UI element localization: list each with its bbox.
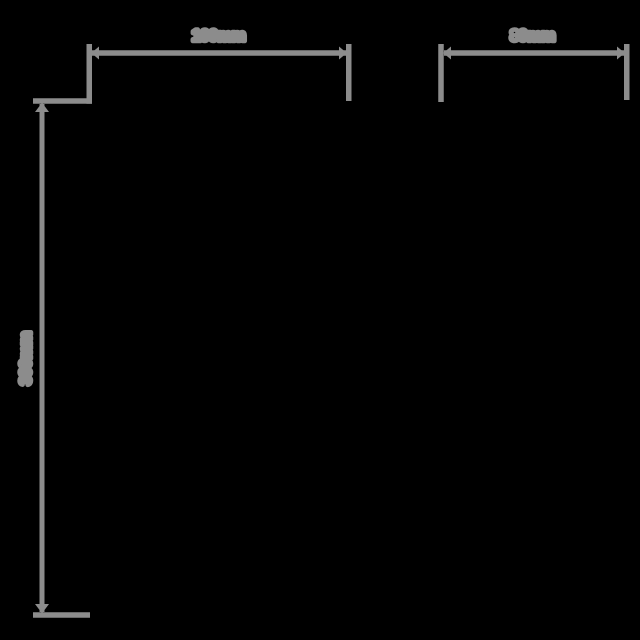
svg-text:300mm: 300mm (17, 332, 35, 386)
svg-text:100mm: 100mm (192, 27, 246, 45)
svg-text:80mm: 80mm (510, 27, 555, 45)
